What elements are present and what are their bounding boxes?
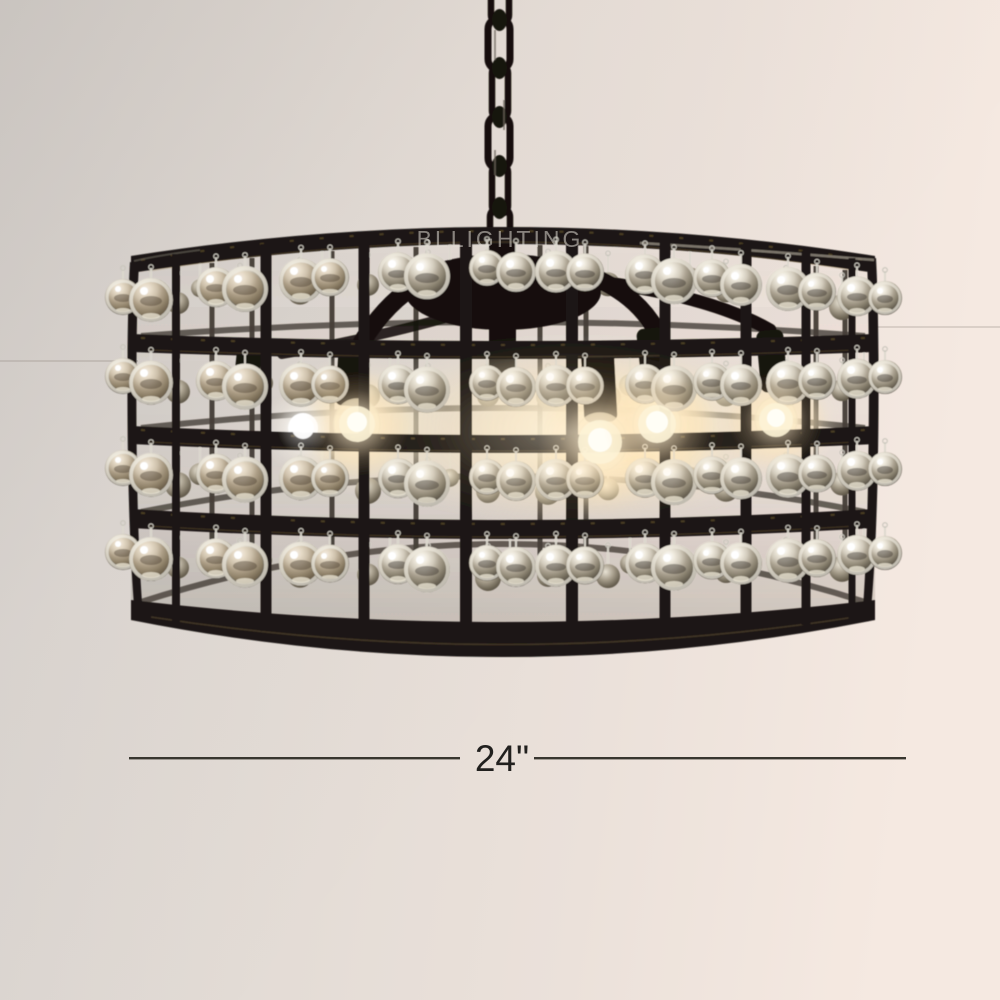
svg-text:24": 24" bbox=[475, 738, 529, 779]
svg-text:BLLIGHTING: BLLIGHTING bbox=[417, 226, 584, 252]
